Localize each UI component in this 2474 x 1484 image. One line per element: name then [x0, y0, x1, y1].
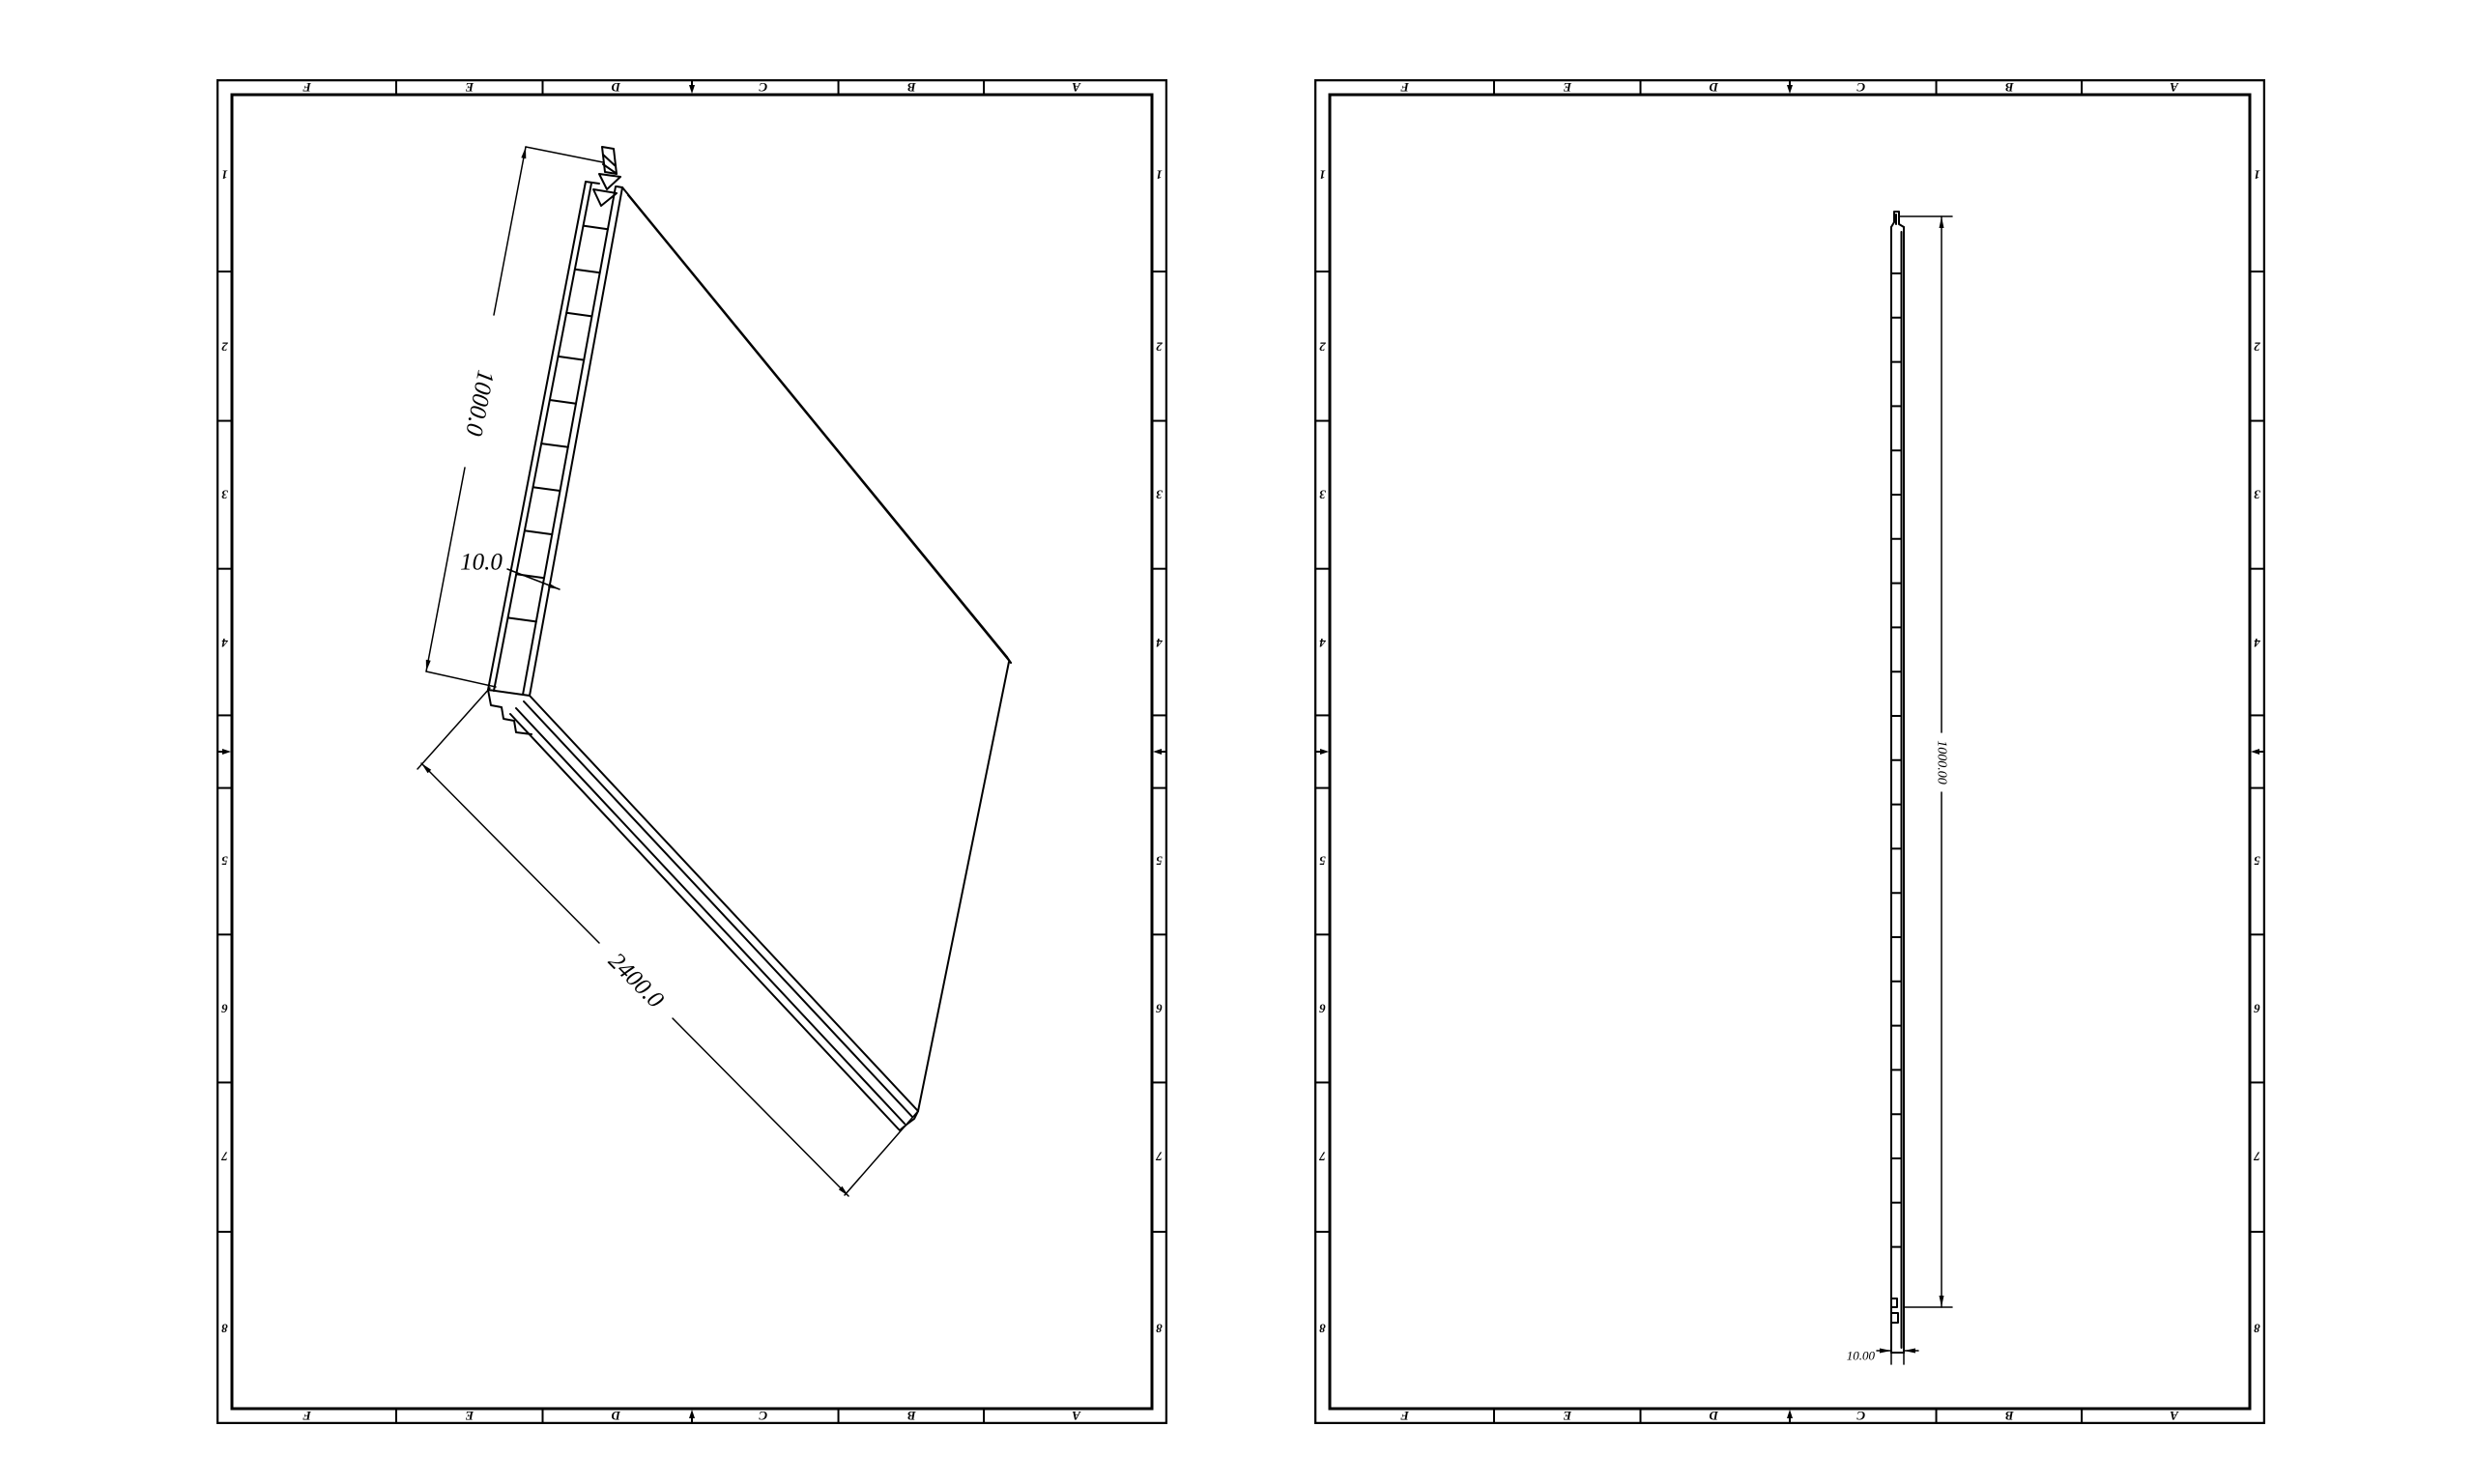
tongue-edge-detail	[593, 147, 622, 206]
sheet-right-svg: FFEEDDCCBBAA1122334455667788	[1314, 79, 2265, 1424]
inner-border	[1330, 95, 2250, 1409]
dim-text-length: 1000.0	[460, 368, 499, 439]
zone-number: 1	[1156, 167, 1163, 182]
cell-rung	[584, 226, 608, 230]
dim-text-length: 1000.00	[1935, 740, 1949, 785]
zone-number: 8	[1319, 1322, 1326, 1336]
panel-section-strip	[1891, 227, 1904, 1353]
zone-number: 7	[2254, 1149, 2260, 1163]
panel-cell-rungs	[508, 226, 608, 622]
zone-letter: F	[1400, 1409, 1410, 1423]
inner-border	[232, 95, 1152, 1409]
border-frame: FFEEDDCCBBAA1122334455667788	[217, 80, 1166, 1423]
zone-number: 2	[221, 340, 229, 355]
zone-letter: A	[2170, 80, 2179, 95]
groove-edge-detail	[1891, 1298, 1898, 1323]
zone-number: 3	[1319, 488, 1327, 502]
center-arrow-icon	[689, 1410, 695, 1418]
cell-rung	[508, 617, 536, 621]
zone-letter: F	[302, 1409, 312, 1423]
center-arrow-icon	[1787, 1410, 1793, 1418]
cell-rung	[559, 357, 585, 360]
dimension-thickness-10: 10.00	[1847, 1349, 1918, 1365]
drawing-sheet-left: FFEEDDCCBBAA1122334455667788	[216, 79, 1167, 1424]
zone-number: 7	[221, 1149, 228, 1163]
zone-letter: D	[611, 80, 621, 95]
zone-number: 4	[1319, 636, 1327, 650]
cell-rung	[533, 487, 561, 491]
dim-arrow-icon	[1940, 216, 1944, 228]
zone-number: 2	[1156, 340, 1164, 355]
zone-number: 6	[221, 1001, 228, 1015]
zone-letter: F	[1400, 80, 1410, 95]
outer-border	[217, 80, 1166, 1423]
dim-text-thickness: 10.00	[1847, 1349, 1876, 1363]
zone-letter: C	[1856, 1409, 1865, 1423]
zone-number: 8	[1156, 1322, 1163, 1336]
center-arrow-icon	[1787, 85, 1793, 94]
panel-bottom-edge	[488, 690, 918, 1130]
zone-letter: E	[1563, 1409, 1572, 1423]
zone-number: 2	[1319, 340, 1327, 355]
zone-letter: C	[759, 1409, 767, 1423]
zone-number: 6	[1319, 1001, 1326, 1015]
zone-letter: C	[759, 80, 767, 95]
dim-text-width: 2400.0	[603, 948, 669, 1013]
dim-arrow-icon	[1904, 1349, 1915, 1354]
center-arrow-icon	[2251, 749, 2259, 755]
zone-number: 8	[2254, 1322, 2260, 1336]
dim-arrow-icon	[426, 660, 431, 671]
zone-number: 4	[1156, 636, 1164, 650]
zone-letter: D	[1709, 80, 1719, 95]
center-arrow-icon	[222, 749, 231, 755]
dim-arrow-icon	[521, 147, 526, 158]
zone-number: 6	[1156, 1001, 1163, 1015]
zone-number: 7	[1156, 1149, 1163, 1163]
zone-number: 4	[2254, 636, 2261, 650]
zone-number: 5	[2254, 853, 2260, 868]
zone-letter: A	[1072, 80, 1081, 95]
border-frame: FFEEDDCCBBAA1122334455667788	[1315, 80, 2264, 1423]
dimension-length-1000: 1000.00	[1900, 216, 1952, 1307]
page-canvas: { "page": { "background": "#ffffff", "li…	[0, 0, 2474, 1484]
zone-number: 6	[2254, 1001, 2260, 1015]
zone-number: 5	[221, 853, 228, 868]
cell-rung	[566, 313, 591, 317]
zone-number: 2	[2254, 340, 2261, 355]
panel-isometric-drawing	[488, 147, 1011, 1130]
drawing-sheet-right: FFEEDDCCBBAA1122334455667788	[1314, 79, 2265, 1424]
dim-arrow-icon	[1880, 1349, 1891, 1354]
panel-end-face	[488, 182, 622, 696]
zone-letter: C	[1856, 80, 1865, 95]
zone-number: 3	[1156, 488, 1164, 502]
zone-letter: A	[1072, 1409, 1081, 1423]
cell-rung	[550, 400, 576, 404]
dim-text-thickness: 10.0	[460, 550, 503, 576]
cell-rung	[575, 270, 600, 273]
dim-arrow-icon	[1940, 1296, 1944, 1307]
center-arrow-icon	[1153, 749, 1162, 755]
zone-number: 4	[221, 636, 229, 650]
zone-number: 1	[1319, 167, 1326, 182]
panel-cell-rungs	[1891, 273, 1902, 1247]
dimension-thickness-10: 10.0	[460, 550, 560, 590]
zone-number: 5	[1156, 853, 1163, 868]
zone-letter: F	[302, 80, 312, 95]
panel-side-drawing	[1891, 212, 1904, 1353]
zone-letter: B	[2005, 80, 2015, 95]
zone-letter: B	[2005, 1409, 2015, 1423]
zone-letter: E	[465, 1409, 475, 1423]
zone-letter: D	[611, 1409, 621, 1423]
zone-letter: A	[2170, 1409, 2179, 1423]
sheet-left-svg: FFEEDDCCBBAA1122334455667788	[216, 79, 1167, 1424]
zone-number: 7	[1319, 1149, 1326, 1163]
zone-letter: B	[907, 1409, 917, 1423]
zone-number: 1	[2254, 167, 2260, 182]
dimension-width-2400: 2400.0	[417, 688, 918, 1196]
zone-number: 3	[221, 488, 229, 502]
outer-border	[1315, 80, 2264, 1423]
zone-number: 3	[2254, 488, 2261, 502]
zone-letter: B	[907, 80, 917, 95]
zone-number: 5	[1319, 853, 1326, 868]
tongue-edge-detail	[1891, 212, 1904, 227]
cell-rung	[541, 443, 568, 447]
zone-letter: D	[1709, 1409, 1719, 1423]
zone-letter: E	[465, 80, 475, 95]
panel-top-face	[530, 187, 1011, 1111]
zone-number: 8	[221, 1322, 228, 1336]
cell-rung	[525, 530, 552, 534]
center-arrow-icon	[1320, 749, 1329, 755]
zone-number: 1	[221, 167, 228, 182]
zone-letter: E	[1563, 80, 1572, 95]
center-arrow-icon	[689, 85, 695, 94]
